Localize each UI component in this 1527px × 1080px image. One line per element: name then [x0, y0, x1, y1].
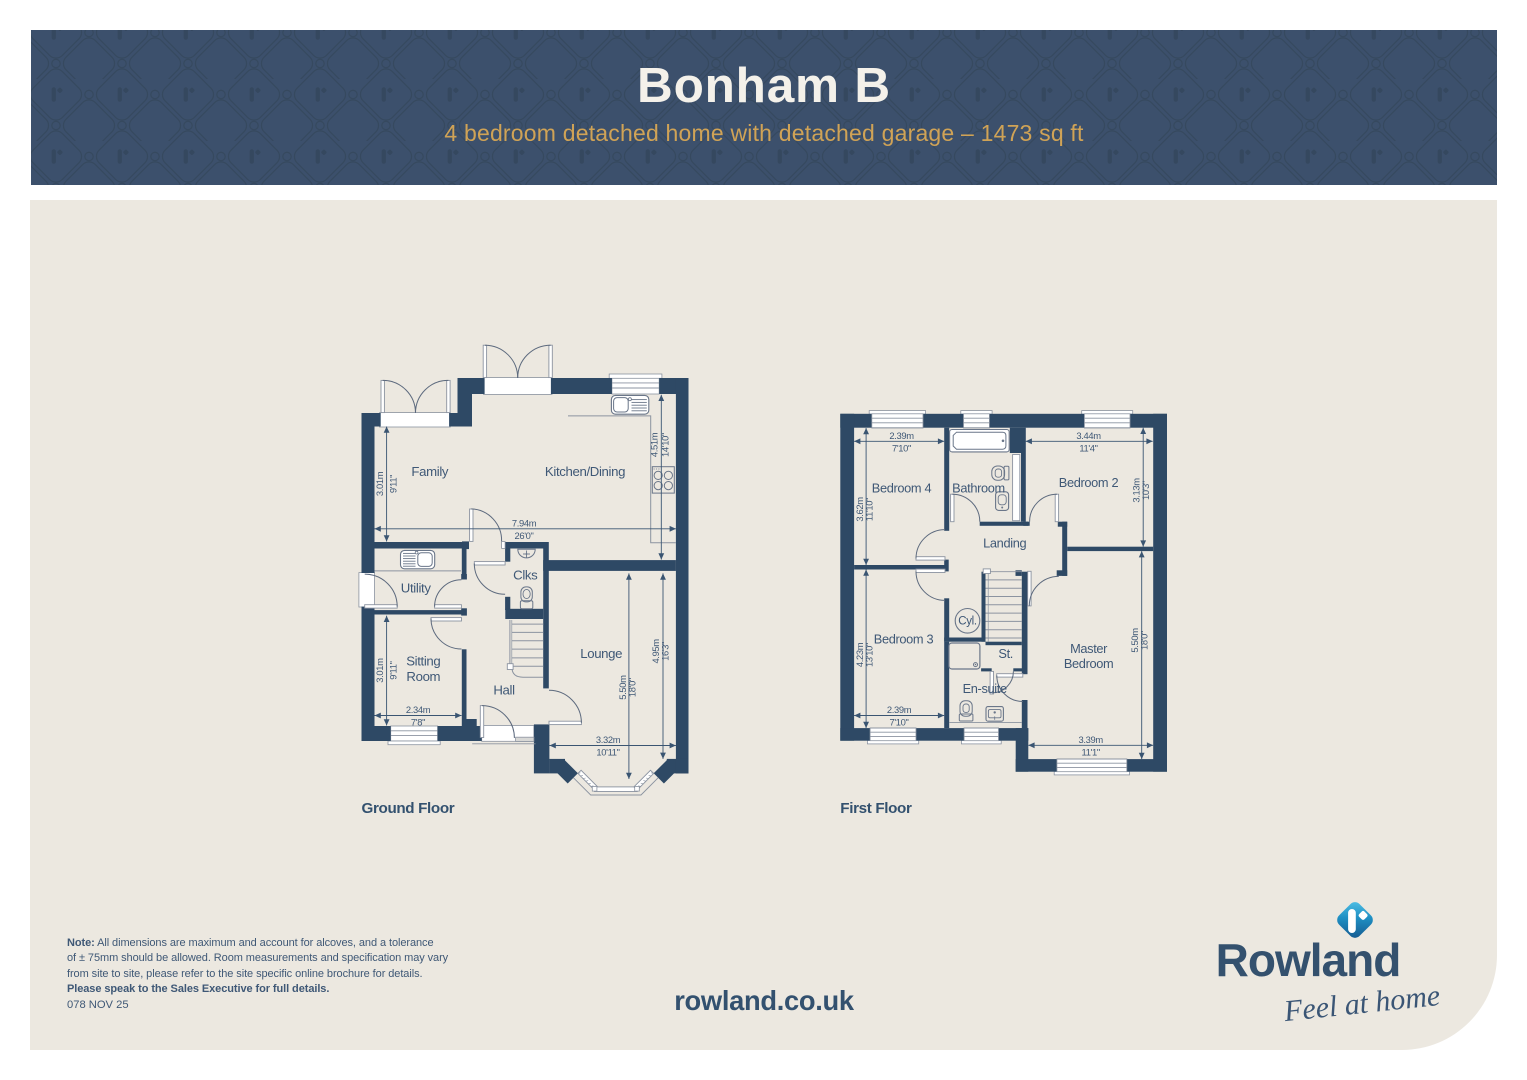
svg-text:Clks: Clks: [513, 568, 538, 583]
svg-text:Rowland: Rowland: [1216, 934, 1401, 986]
svg-text:Room: Room: [406, 669, 440, 684]
svg-text:10'3": 10'3": [1140, 481, 1151, 500]
svg-text:Sitting: Sitting: [406, 654, 440, 669]
svg-text:14'10": 14'10": [659, 433, 670, 457]
svg-text:26'0": 26'0": [514, 530, 533, 541]
svg-text:Landing: Landing: [983, 535, 1026, 550]
svg-text:Master: Master: [1070, 641, 1108, 656]
svg-text:Lounge: Lounge: [580, 646, 622, 661]
svg-text:2.34m: 2.34m: [406, 704, 431, 715]
svg-text:Bedroom 3: Bedroom 3: [874, 632, 934, 647]
svg-text:2.39m: 2.39m: [887, 704, 912, 715]
svg-text:2.39m: 2.39m: [889, 430, 914, 441]
svg-text:7.94m: 7.94m: [512, 518, 537, 529]
svg-text:11'4": 11'4": [1079, 443, 1097, 454]
svg-text:3.44m: 3.44m: [1076, 430, 1101, 441]
svg-text:Cyl.: Cyl.: [958, 616, 977, 628]
svg-text:Feel at home: Feel at home: [1281, 979, 1441, 1028]
svg-text:18'0": 18'0": [626, 678, 637, 697]
svg-text:9'11": 9'11": [388, 661, 399, 679]
svg-text:9'11": 9'11": [388, 475, 399, 493]
svg-text:3.01m: 3.01m: [374, 658, 385, 683]
svg-text:En-suite: En-suite: [963, 681, 1007, 696]
svg-text:Bedroom: Bedroom: [1064, 656, 1113, 671]
svg-text:3.01m: 3.01m: [374, 471, 385, 496]
svg-text:7'8": 7'8": [411, 717, 425, 728]
svg-text:Ground Floor: Ground Floor: [362, 800, 455, 817]
svg-text:10'11": 10'11": [596, 747, 619, 758]
svg-text:Utility: Utility: [401, 581, 432, 596]
svg-text:16'3": 16'3": [659, 642, 670, 661]
svg-text:3.32m: 3.32m: [596, 734, 621, 745]
svg-text:Family: Family: [411, 464, 448, 479]
svg-text:11'1": 11'1": [1082, 747, 1100, 758]
svg-text:St.: St.: [998, 646, 1013, 661]
svg-text:7'10": 7'10": [889, 717, 908, 728]
svg-text:Bedroom 4: Bedroom 4: [872, 481, 932, 496]
svg-text:Kitchen/Dining: Kitchen/Dining: [545, 464, 625, 479]
svg-text:13'10": 13'10": [863, 643, 874, 667]
svg-text:3.39m: 3.39m: [1079, 734, 1104, 745]
svg-text:7'10": 7'10": [892, 443, 911, 454]
svg-text:Bathroom: Bathroom: [952, 481, 1005, 496]
svg-text:Bedroom 2: Bedroom 2: [1059, 475, 1119, 490]
svg-text:Hall: Hall: [493, 682, 515, 697]
svg-text:First Floor: First Floor: [840, 800, 912, 817]
svg-text:11'10": 11'10": [863, 498, 874, 521]
svg-text:18'0": 18'0": [1139, 631, 1150, 650]
svg-text:4.51m: 4.51m: [649, 432, 660, 457]
